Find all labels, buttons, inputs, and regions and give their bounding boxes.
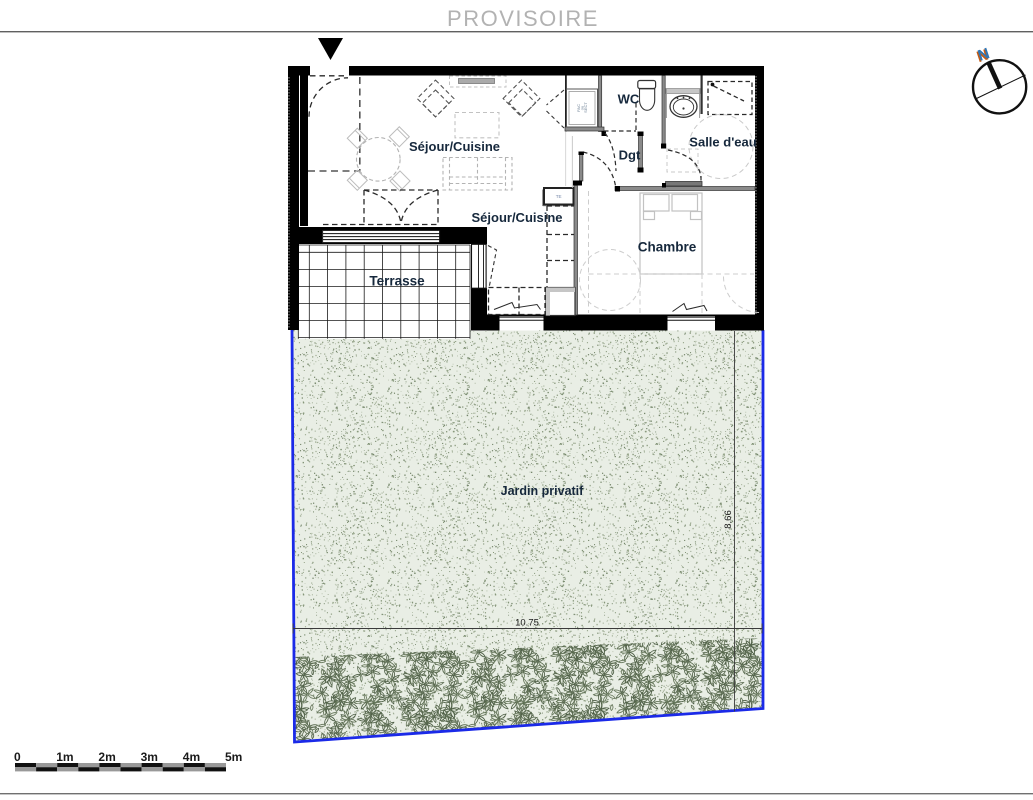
- svg-text:Dgt: Dgt: [619, 148, 641, 163]
- svg-text:TE: TE: [556, 194, 562, 199]
- svg-text:Salle d'eau: Salle d'eau: [689, 135, 756, 150]
- svg-text:8.66: 8.66: [723, 510, 734, 529]
- svg-text:Terrasse: Terrasse: [369, 274, 425, 289]
- svg-text:Séjour/Cuisine: Séjour/Cuisine: [471, 210, 562, 225]
- svg-text:1m: 1m: [56, 750, 73, 764]
- svg-text:SECT: SECT: [583, 102, 588, 113]
- svg-text:Jardin privatif: Jardin privatif: [501, 484, 584, 498]
- svg-text:5m: 5m: [225, 750, 242, 764]
- svg-text:Séjour/Cuisine: Séjour/Cuisine: [409, 139, 500, 154]
- svg-text:0: 0: [14, 750, 21, 764]
- svg-text:PROVISOIRE: PROVISOIRE: [447, 6, 599, 31]
- svg-text:Chambre: Chambre: [638, 240, 697, 255]
- svg-text:4m: 4m: [183, 750, 200, 764]
- svg-text:10.75: 10.75: [515, 618, 539, 629]
- svg-text:2m: 2m: [98, 750, 115, 764]
- svg-text:3m: 3m: [141, 750, 158, 764]
